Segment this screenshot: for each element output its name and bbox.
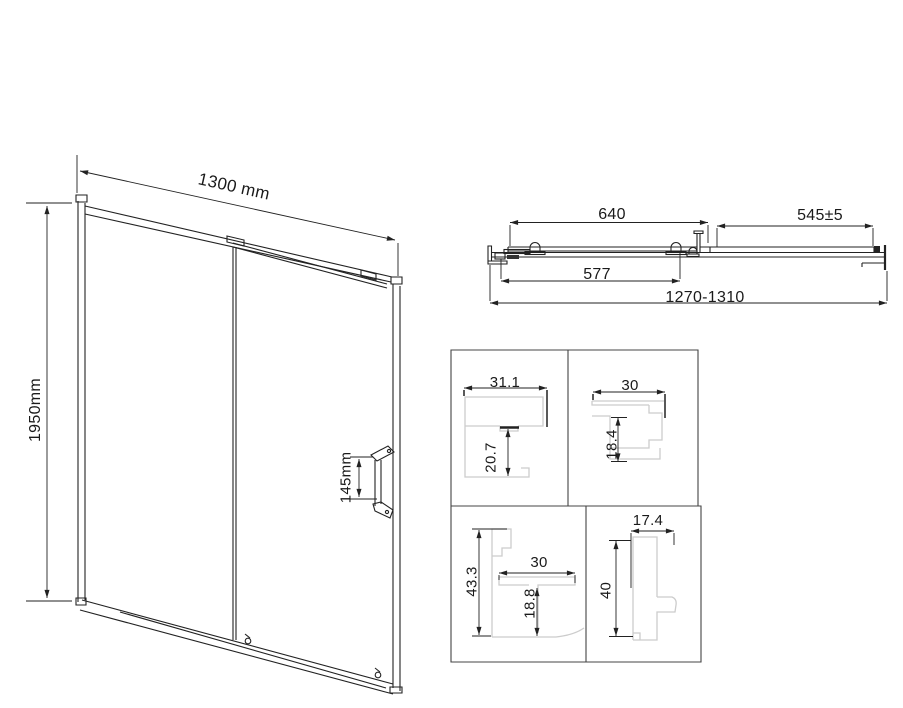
fixed-panel-dimension-label: 545±5: [775, 207, 865, 225]
wall-profile-section: [465, 397, 543, 477]
stile-profile-height-label: 40: [598, 566, 615, 616]
frame-profile-height-label: 43.3: [464, 554, 481, 610]
dim-545-extensions: [717, 228, 873, 247]
top-view-assembly: [488, 231, 885, 270]
opening-width-dimension-label: 577: [557, 266, 637, 284]
wall-profile-depth-label: 20.7: [483, 430, 500, 486]
door-left-stile: [78, 201, 85, 602]
technical-drawing-page: 1300 mm 1950mm 145mm 640 545±5 577 1270-…: [0, 0, 903, 708]
panel-divider: [233, 247, 236, 640]
bottom-roller-left-stem: [245, 634, 250, 638]
center-bracket: [694, 231, 703, 252]
front-view-door-frame: [76, 195, 402, 694]
door-handle: [371, 446, 394, 518]
front-height-dimension-label: 1950mm: [27, 375, 45, 445]
wall-profile-left: [488, 246, 507, 264]
stile-profile-section: [633, 537, 676, 640]
overall-width-range-label: 1270-1310: [630, 289, 780, 307]
sliding-panel-top-bar: [233, 243, 387, 288]
bottom-roller-right-stem: [375, 668, 380, 672]
hook-profile-width-label: 30: [610, 377, 650, 394]
drawing-linework: [0, 0, 903, 708]
wall-profile-width-label: 31.1: [477, 374, 533, 391]
frame-profile-inner-depth-label: 18.8: [522, 576, 539, 632]
door-right-stile: [393, 284, 400, 691]
handle-height-dimension-label: 145mm: [338, 448, 355, 508]
hook-profile-depth-label: 18.4: [604, 417, 621, 473]
stile-profile-width-label: 17.4: [620, 512, 676, 529]
bottom-roller-left: [245, 638, 251, 644]
frame-profile-width-label: 30: [519, 554, 559, 571]
sliding-panel-dimension-label: 640: [572, 206, 652, 224]
bottom-roller-right: [375, 672, 381, 678]
front-view-dimensions: [26, 155, 398, 601]
